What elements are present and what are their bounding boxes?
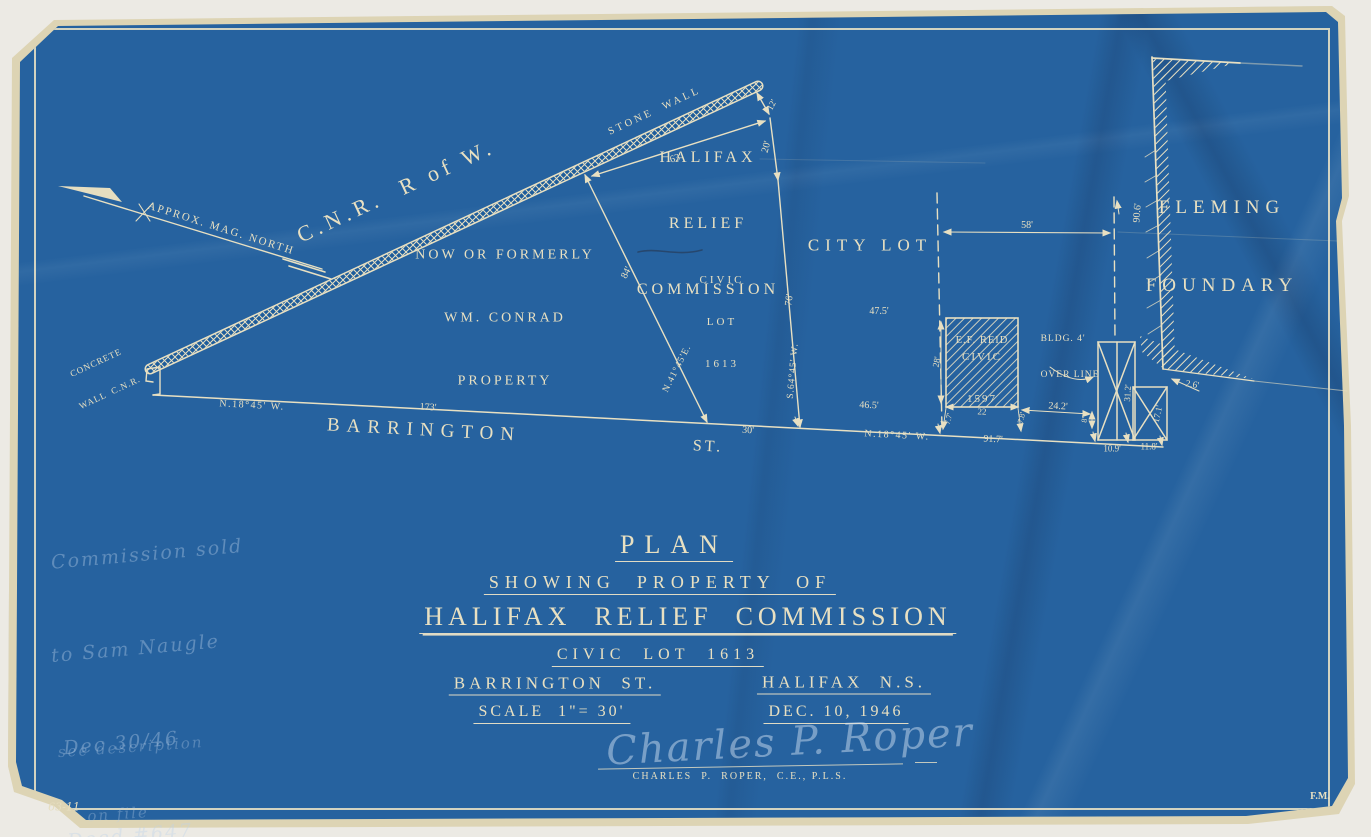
signature-dash (915, 762, 937, 763)
reid-civic-label: CIVIC 1597 (962, 322, 1002, 434)
dim-8: 8' (1081, 417, 1090, 424)
conrad-line1: NOW OR FORMERLY (415, 245, 594, 266)
title-scale: SCALE 1"= 30' (473, 704, 630, 724)
dim-10-9: 10.9' (1103, 445, 1120, 454)
dim-91-7: 91.7' (983, 435, 1003, 446)
note1-line2: to Sam Naugle (50, 624, 253, 672)
title-street: BARRINGTON ST. (449, 675, 661, 696)
dim-58-line (944, 232, 1110, 233)
title-civic-lot: CIVIC LOT 1613 (552, 647, 764, 667)
dim-90-6-tick (1117, 201, 1119, 214)
note2-line2: on file (87, 797, 209, 827)
conrad-property-label: NOW OR FORMERLY WM. CONRAD PROPERTY (415, 203, 594, 434)
corner-mark-initials: F.M. (1310, 792, 1330, 802)
surveyor-printed-name: CHARLES P. ROPER, C.E., P.L.S. (633, 772, 848, 782)
corner-mark-number: 63-11 (48, 802, 80, 813)
dim-31-2: 31.2' (1123, 384, 1133, 402)
note2-line1: see description (57, 731, 204, 763)
dim-90-6: 90.6' (1132, 203, 1143, 223)
dim-30: 30' (742, 426, 754, 437)
dim-22: 22 (977, 407, 986, 416)
fleming-line1: FLEMING (1146, 195, 1299, 221)
bldg-note-line2: OVER LINE (1041, 369, 1100, 381)
dim-46-5: 46.5' (859, 401, 879, 412)
fleming-line2: FOUNDARY (1146, 273, 1299, 299)
concrete-wall-line2: WALL C.N.R. (78, 374, 143, 412)
concrete-wall-line1: CONCRETE (64, 344, 129, 382)
hrc-line1: HALIFAX (637, 147, 779, 169)
fleming-foundary-label: FLEMING FOUNDARY (1146, 143, 1299, 351)
bldg-note-line1: BLDG. 4' (1041, 333, 1100, 345)
street-name-st: ST. (692, 438, 723, 456)
blueprint-scan: APPROX. MAG. NORTH C.N.R. R of W. STONE … (0, 0, 1371, 837)
dim-76: 76' (784, 294, 795, 307)
title-owner: HALIFAX RELIEF COMMISSION (419, 604, 956, 634)
dim-11-8: 11.8' (1140, 443, 1157, 452)
handwritten-note-description: see description on file (54, 687, 212, 837)
crease-line (760, 159, 985, 163)
hrc-civic-lot: CIVIC LOT 1613 (700, 245, 745, 399)
reid-civic-line1: CIVIC (962, 350, 1002, 364)
conrad-line2: WM. CONRAD (415, 308, 594, 329)
dim-173: 173' (419, 403, 436, 414)
dim-47-5: 47.5' (869, 307, 888, 317)
dim-28: 28' (932, 356, 943, 368)
bldg-over-line-note: BLDG. 4' OVER LINE (1041, 309, 1100, 405)
hrc-civic-line2: LOT (700, 315, 745, 329)
north-arrow (58, 186, 331, 279)
title-showing: SHOWING PROPERTY OF (484, 573, 836, 595)
reid-civic-line2: 1597 (962, 392, 1002, 406)
dim-58: 58' (1021, 221, 1033, 231)
conrad-line3: PROPERTY (415, 371, 594, 392)
hrc-civic-line1: CIVIC (700, 273, 745, 287)
title-city: HALIFAX N.S. (757, 674, 931, 695)
hrc-civic-line3: 1613 (700, 357, 745, 371)
title-plan: PLAN (615, 532, 733, 562)
hrc-line2: RELIEF (637, 213, 779, 235)
note1-line1: Commission sold (50, 531, 245, 579)
city-lot-label: CITY LOT (808, 237, 932, 254)
